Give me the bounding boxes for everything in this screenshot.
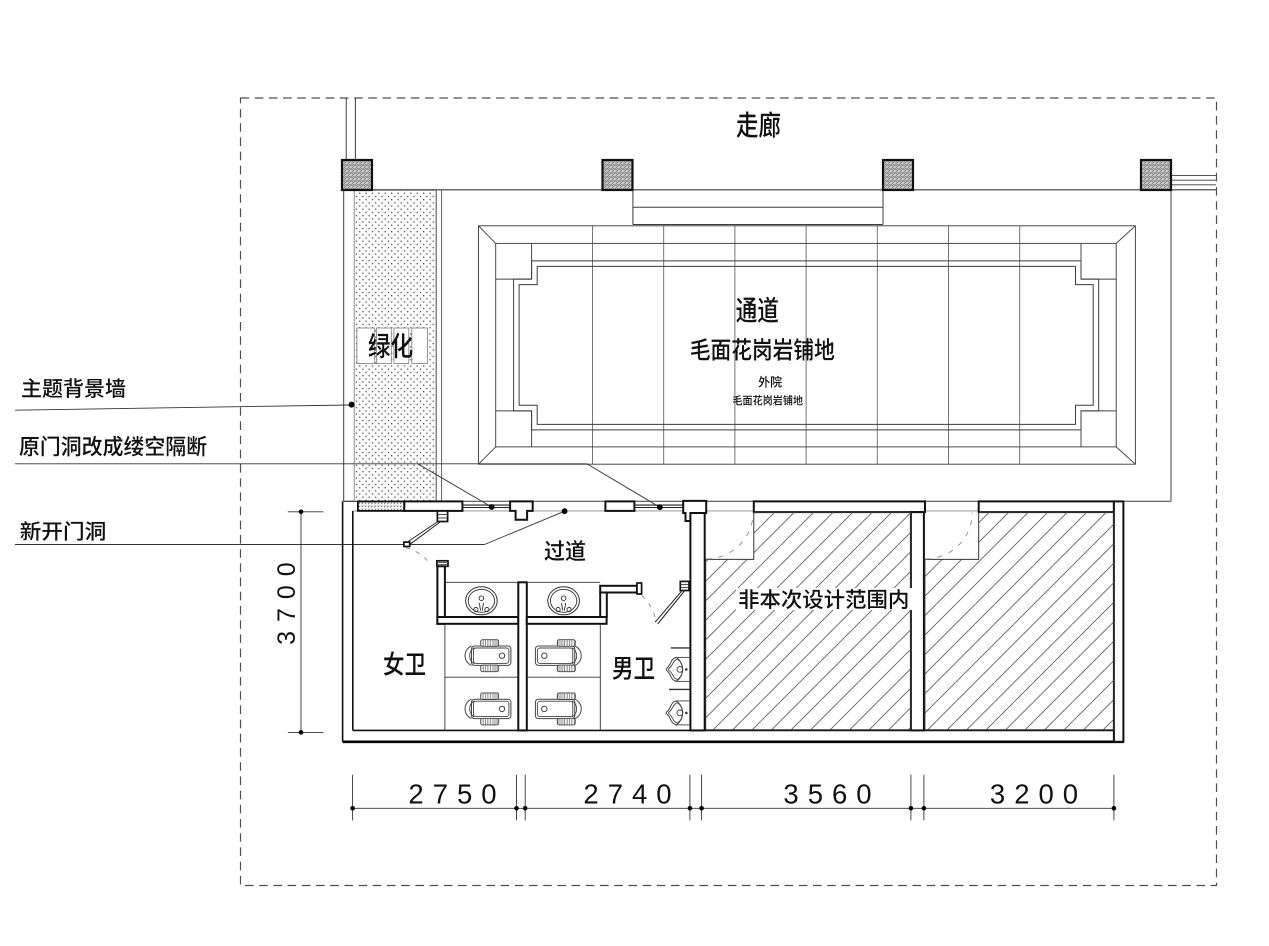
svg-text:2740: 2740: [583, 779, 680, 810]
svg-text:2750: 2750: [408, 779, 505, 810]
svg-text:3200: 3200: [990, 779, 1087, 810]
svg-text:3700: 3700: [273, 553, 301, 645]
svg-text:3560: 3560: [783, 779, 880, 810]
